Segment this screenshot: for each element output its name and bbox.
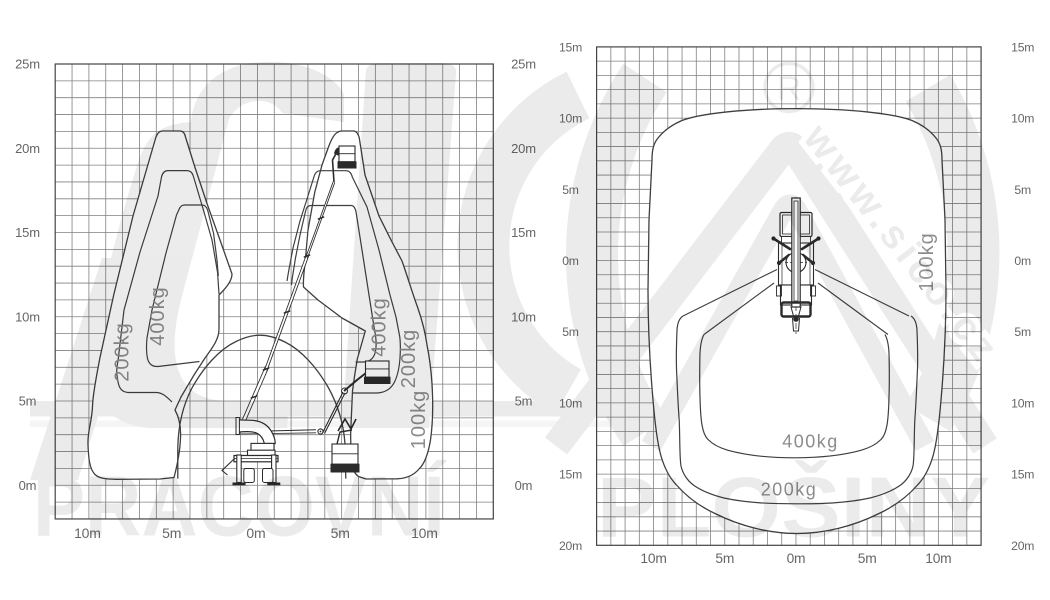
svg-text:10m: 10m bbox=[1011, 396, 1034, 410]
svg-text:R: R bbox=[777, 70, 801, 107]
svg-text:0m: 0m bbox=[515, 478, 533, 493]
svg-text:20m: 20m bbox=[1011, 539, 1034, 553]
svg-text:0m: 0m bbox=[1014, 254, 1031, 268]
svg-text:15m: 15m bbox=[1011, 468, 1034, 482]
svg-text:10m: 10m bbox=[1011, 112, 1034, 126]
svg-text:15m: 15m bbox=[559, 468, 582, 482]
svg-text:15m: 15m bbox=[1011, 40, 1034, 54]
svg-text:20m: 20m bbox=[559, 539, 582, 553]
svg-text:15m: 15m bbox=[511, 225, 536, 240]
svg-text:5m: 5m bbox=[1014, 325, 1031, 339]
svg-text:PLOŠINY: PLOŠINY bbox=[597, 460, 990, 556]
svg-text:5m: 5m bbox=[1014, 183, 1031, 197]
svg-text:10m: 10m bbox=[15, 309, 40, 324]
svg-text:400kg: 400kg bbox=[782, 432, 839, 452]
svg-text:15m: 15m bbox=[15, 225, 40, 240]
svg-text:25m: 25m bbox=[511, 57, 536, 72]
svg-text:PRACOVNÍ: PRACOVNÍ bbox=[33, 460, 447, 555]
svg-text:20m: 20m bbox=[15, 141, 40, 156]
svg-text:15m: 15m bbox=[559, 40, 582, 54]
svg-text:25m: 25m bbox=[15, 57, 40, 72]
